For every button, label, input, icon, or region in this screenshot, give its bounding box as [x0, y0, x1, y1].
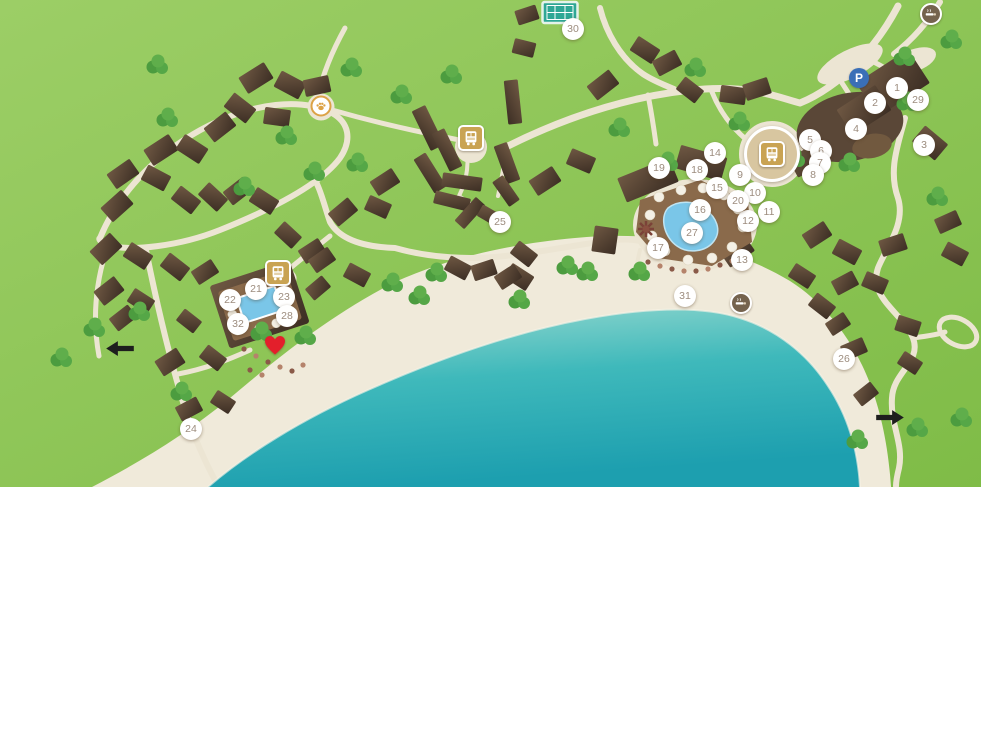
- map-marker-16[interactable]: 16: [689, 199, 711, 221]
- map-marker-26[interactable]: 26: [833, 348, 855, 370]
- map-marker-24[interactable]: 24: [180, 418, 202, 440]
- map-marker-31[interactable]: 31: [674, 285, 696, 307]
- shuttle-stop-icon[interactable]: [265, 260, 291, 286]
- map-marker-13[interactable]: 13: [731, 249, 753, 271]
- legend-panel: SECRETS® Papagayo COSTA RICA 1. Main Lob…: [0, 487, 981, 750]
- map-marker-12[interactable]: 12: [737, 210, 759, 232]
- romantic-spot-icon[interactable]: [263, 335, 287, 362]
- map-icon-wrapper: [263, 335, 287, 362]
- map-icon-wrapper: P: [849, 68, 869, 88]
- map-marker-14[interactable]: 14: [704, 142, 726, 164]
- resort-map-illustration: [0, 0, 981, 487]
- map-marker-28[interactable]: 28: [276, 305, 298, 327]
- map-icon-wrapper: [744, 126, 800, 182]
- map-marker-3[interactable]: 3: [913, 134, 935, 156]
- map-icon-wrapper: [458, 125, 484, 151]
- hiking-trail-arrow-icon[interactable]: [876, 409, 904, 431]
- map-marker-27[interactable]: 27: [681, 222, 703, 244]
- shuttle-stop-icon[interactable]: [744, 126, 800, 182]
- resort-map: P123456789101112131415161718192021222324…: [0, 0, 981, 487]
- map-icon-wrapper: [920, 3, 942, 25]
- map-marker-30[interactable]: 30: [562, 18, 584, 40]
- map-icon-wrapper: [106, 340, 134, 362]
- map-marker-25[interactable]: 25: [489, 211, 511, 233]
- shuttle-stop-icon[interactable]: [458, 125, 484, 151]
- smoking-area-icon[interactable]: [730, 292, 752, 314]
- map-marker-17[interactable]: 17: [647, 237, 669, 259]
- map-marker-11[interactable]: 11: [758, 201, 780, 223]
- hiking-trail-arrow-icon[interactable]: [106, 340, 134, 362]
- map-marker-22[interactable]: 22: [219, 289, 241, 311]
- map-marker-1[interactable]: 1: [886, 77, 908, 99]
- map-marker-29[interactable]: 29: [907, 89, 929, 111]
- map-icon-wrapper: [311, 96, 332, 117]
- map-marker-15[interactable]: 15: [706, 177, 728, 199]
- map-marker-20[interactable]: 20: [727, 190, 749, 212]
- map-marker-8[interactable]: 8: [802, 164, 824, 186]
- parking-icon[interactable]: P: [849, 68, 869, 88]
- map-marker-32[interactable]: 32: [227, 313, 249, 335]
- map-marker-19[interactable]: 19: [648, 157, 670, 179]
- bus-icon: [759, 141, 785, 167]
- resort-map-page: P123456789101112131415161718192021222324…: [0, 0, 981, 750]
- map-marker-9[interactable]: 9: [729, 164, 751, 186]
- map-icon-wrapper: [265, 260, 291, 286]
- map-icon-wrapper: [730, 292, 752, 314]
- dog-garden-icon[interactable]: [311, 96, 332, 117]
- beach-palapa: [638, 221, 654, 237]
- map-icon-wrapper: [876, 409, 904, 431]
- map-marker-18[interactable]: 18: [686, 159, 708, 181]
- smoking-area-icon[interactable]: [920, 3, 942, 25]
- map-marker-21[interactable]: 21: [245, 278, 267, 300]
- map-marker-4[interactable]: 4: [845, 118, 867, 140]
- map-marker-2[interactable]: 2: [864, 92, 886, 114]
